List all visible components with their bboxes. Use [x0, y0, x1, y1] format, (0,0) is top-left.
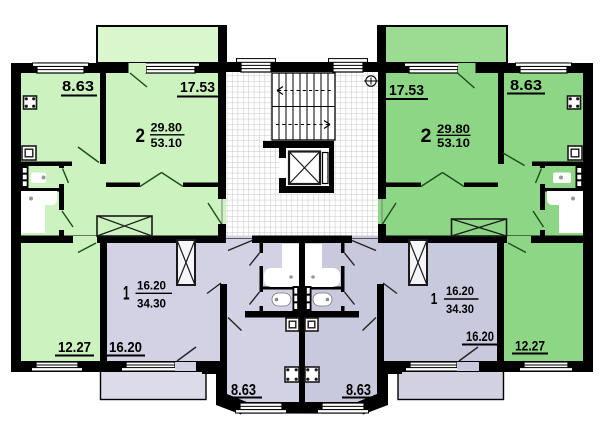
svg-text:1: 1	[431, 291, 438, 308]
svg-text:8.63: 8.63	[510, 78, 542, 94]
svg-text:8.63: 8.63	[231, 382, 256, 399]
svg-text:34.30: 34.30	[137, 297, 166, 311]
svg-text:1: 1	[123, 284, 130, 305]
svg-text:29.80: 29.80	[151, 121, 183, 135]
svg-text:2: 2	[421, 125, 432, 147]
svg-text:16.20: 16.20	[446, 284, 474, 298]
svg-text:12.27: 12.27	[58, 340, 91, 356]
svg-text:16.20: 16.20	[466, 329, 494, 344]
svg-text:16.20: 16.20	[109, 340, 142, 356]
svg-text:34.30: 34.30	[446, 302, 474, 316]
svg-text:53.10: 53.10	[151, 136, 183, 150]
svg-text:53.10: 53.10	[437, 136, 470, 150]
svg-text:29.80: 29.80	[437, 122, 470, 136]
svg-text:8.63: 8.63	[346, 382, 371, 399]
svg-text:17.53: 17.53	[389, 83, 424, 99]
svg-text:16.20: 16.20	[137, 279, 166, 293]
svg-text:12.27: 12.27	[515, 339, 545, 354]
svg-text:17.53: 17.53	[180, 80, 215, 96]
svg-text:8.63: 8.63	[62, 79, 94, 95]
svg-text:2: 2	[136, 125, 146, 147]
